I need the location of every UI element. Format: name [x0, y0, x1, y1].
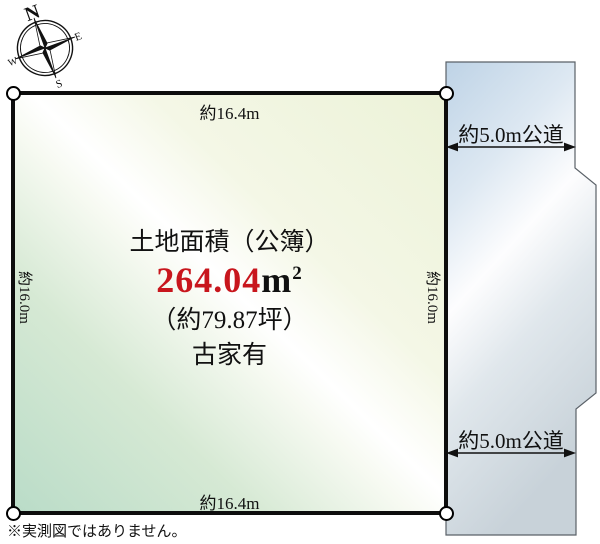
- area-unit: m: [261, 260, 292, 300]
- area-tsubo: （約79.87坪）: [11, 302, 448, 339]
- plot-info-block: 土地面積（公簿） 264.04m2 （約79.87坪） 古家有: [11, 227, 448, 372]
- corner-marker-bottom-right: [439, 506, 454, 521]
- corner-marker-bottom-left: [6, 506, 21, 521]
- compass-star: [4, 7, 86, 89]
- compass-east-label: E: [73, 30, 84, 44]
- compass-south-label: S: [54, 78, 64, 91]
- compass-north-label: N: [22, 2, 44, 26]
- building-status: 古家有: [11, 339, 448, 372]
- land-plot-diagram: N E S W 約16.4m 約16.4m 約16.0m 約16.0m 土地面積…: [0, 0, 600, 544]
- area-value: 264.04: [156, 260, 261, 300]
- area-unit-exponent: 2: [292, 263, 303, 284]
- compass-rose-icon: N E S W: [1, 2, 89, 94]
- footnote: ※実測図ではありません。: [7, 520, 187, 541]
- area-title: 土地面積（公簿）: [11, 227, 448, 258]
- dimension-bottom-label: 約16.4m: [11, 489, 448, 514]
- area-value-line: 264.04m2: [11, 258, 448, 302]
- road-width-label-top: 約5.0m公道: [447, 119, 575, 149]
- corner-marker-top-right: [439, 86, 454, 101]
- road-width-label-bottom: 約5.0m公道: [447, 425, 575, 455]
- dimension-top-label: 約16.4m: [11, 99, 448, 124]
- corner-marker-top-left: [6, 86, 21, 101]
